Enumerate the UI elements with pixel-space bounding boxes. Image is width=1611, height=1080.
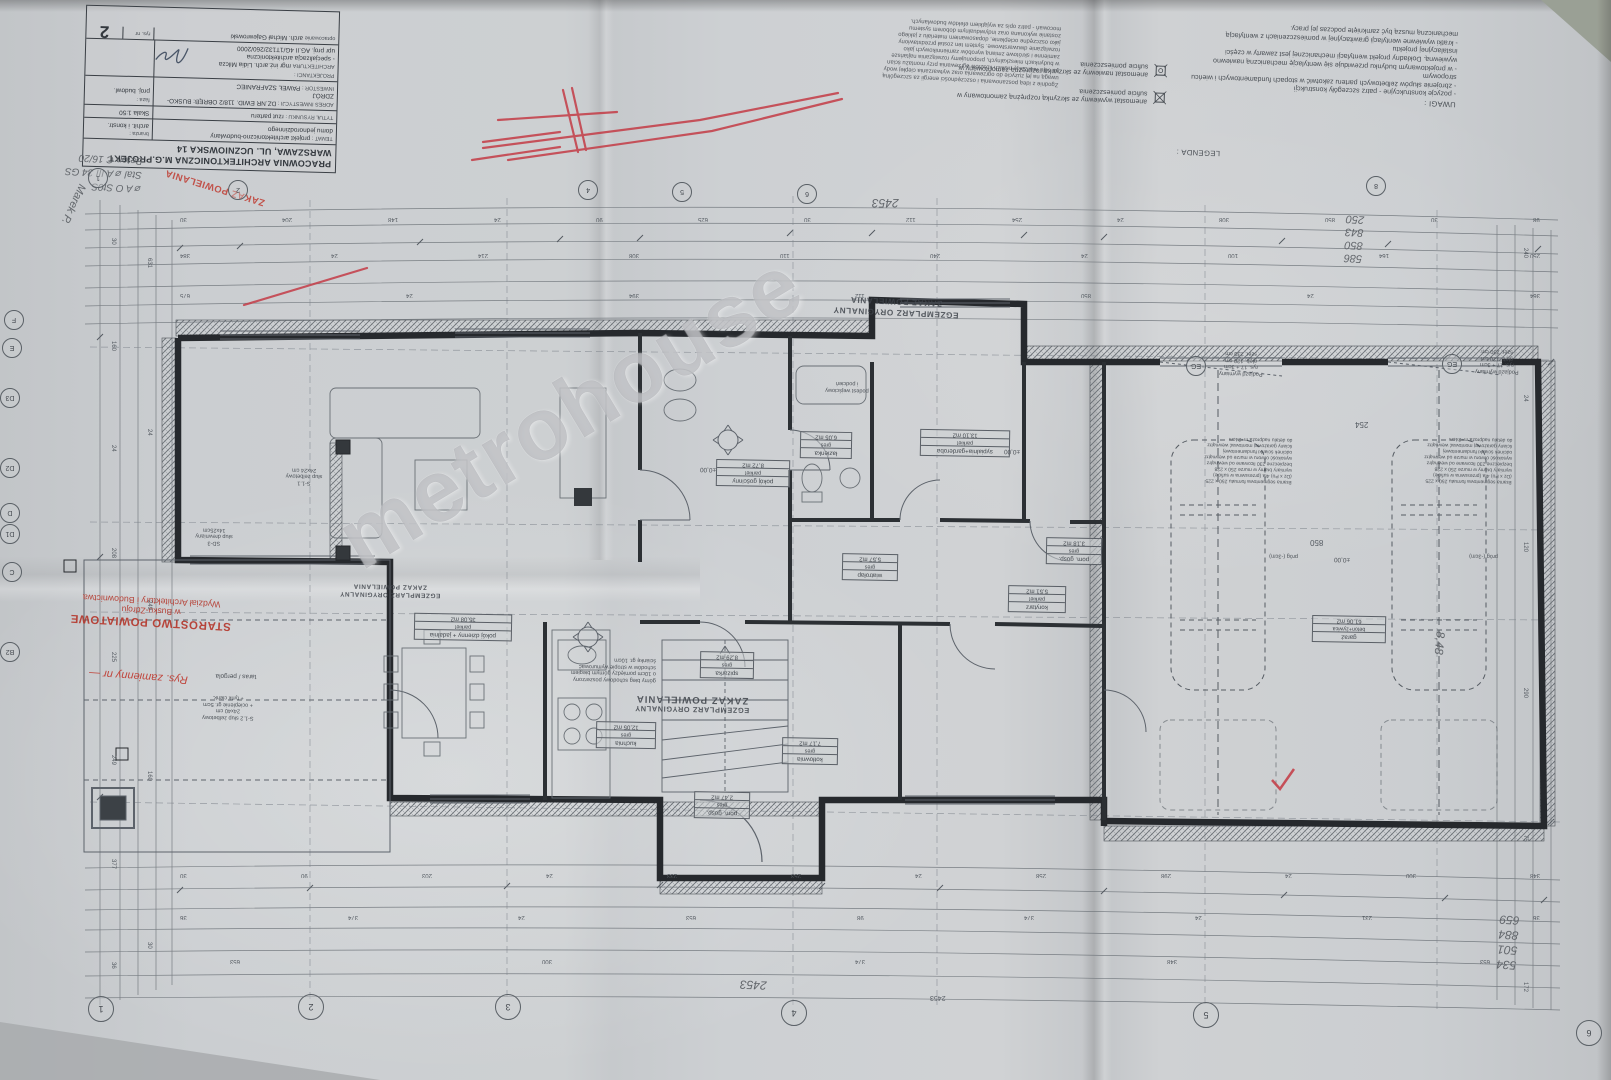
dim-value: 30 <box>180 872 187 878</box>
dim-value: 30 <box>110 238 116 248</box>
dim-value: 203 <box>422 872 432 878</box>
dim-value: 308 <box>1219 216 1229 222</box>
room-label: wiatrołapgres5,57 m2 <box>842 554 898 582</box>
room-label: spiżarkagres8,29 m2 <box>700 652 754 680</box>
anemostat-exhaust-icon <box>1153 91 1166 104</box>
axis-bubble: 1 <box>88 168 108 188</box>
dim-chain-left: 301602420822524937736 <box>108 240 118 970</box>
projektanci-label: PROJEKTANCI : <box>294 71 334 78</box>
dim-value: 98 <box>857 914 864 920</box>
dim-value: 348 <box>1530 872 1540 878</box>
dim-value: 653 <box>230 958 240 964</box>
dim-value: 24 <box>1285 872 1292 878</box>
pencil-number: 2453 <box>872 196 899 210</box>
axis-bubble: 4 <box>578 180 598 200</box>
dim-value: 30 <box>180 216 187 222</box>
dim-value: 374 <box>1024 914 1034 920</box>
dim-chain-bottom-2: 3637424653983742423136 <box>180 914 1540 920</box>
axis-bubble: D3 <box>0 388 20 408</box>
level-mark: ±0,00 <box>700 466 716 473</box>
dim-value: 250 <box>1530 252 1540 258</box>
room-label: sypialnia+garderobaparkiet13,10 m2 <box>920 429 1010 457</box>
dim-value: 258 <box>1036 872 1046 878</box>
faza-value: proj. budowl. <box>114 87 150 95</box>
dim-value: 254 <box>1012 216 1022 222</box>
dim-value: 298 <box>1161 872 1171 878</box>
dim-value: 90 <box>301 872 308 878</box>
axis-bubble: 4 <box>781 1000 807 1026</box>
stairs-note: górny bieg schodowy poszerzonyo 10cm pom… <box>548 655 656 683</box>
room-label: pokój gościnnyparkiet8,72 m2 <box>716 459 790 487</box>
dim-chain-bottom-3: 653300374348653 <box>230 958 1490 964</box>
prog-label: próg (-3cm) <box>1246 552 1298 560</box>
dim-value: 90 <box>596 216 603 222</box>
pencil-number: 8,48 <box>1432 631 1448 655</box>
dim-value: 24 <box>110 445 116 455</box>
room-label: garażbeton+żywica61,06 m2 <box>1312 615 1386 643</box>
dim-value: 30 <box>146 942 152 952</box>
fireplace <box>574 488 592 506</box>
garage-door-note: Brama segmentowa formatu 250 x 225(Dz x … <box>1180 435 1293 485</box>
dim-value: 377 <box>110 859 116 869</box>
temat-value-2: domu jednorodzinnego <box>268 125 333 134</box>
room-label: pom. gosp.gres2,47 m2 <box>694 792 750 820</box>
dim-chain-right: 2402412029075172 <box>1520 250 1530 990</box>
eg-symbol: EG <box>1186 356 1206 376</box>
dim-value: 30 <box>1431 216 1438 222</box>
dim-value: 24 <box>915 872 922 878</box>
column-note-s12: S-1.2 słup żelbetowy24x40 cm+ ocieplenie… <box>182 693 274 721</box>
axis-bubble: 5 <box>672 182 692 202</box>
axis-bubble: C <box>2 562 22 582</box>
level-mark: ±0,00 <box>1004 448 1020 455</box>
dim-value: 675 <box>180 292 190 298</box>
dim-value: 214 <box>478 252 488 258</box>
dim-value: 148 <box>388 216 398 222</box>
dim-value: 110 <box>780 252 790 258</box>
dim-value: 160 <box>110 341 116 351</box>
architekt-name: mgr inż.arch. Lidia Milcza <box>219 60 291 69</box>
signature-icon <box>152 41 193 68</box>
dim-value: 24 <box>146 429 152 439</box>
dim-value: 374 <box>855 958 865 964</box>
dim-value: 653 <box>686 914 696 920</box>
dim-value: 290 <box>1522 688 1528 698</box>
dim-value: 625 <box>698 216 708 222</box>
dim-value: 36 <box>180 914 187 920</box>
axis-bubble: 2 <box>228 180 248 200</box>
dim-value: 308 <box>629 252 639 258</box>
dim-value: 631 <box>146 258 152 268</box>
dim-value: 204 <box>282 216 292 222</box>
room-label: pom. gosp.gres3,18 m2 <box>1046 538 1102 566</box>
room-label: łazienkagres6,05 m2 <box>800 432 852 460</box>
dim-value: 36 <box>110 962 116 972</box>
dim-value: 100 <box>1228 252 1238 258</box>
axis-bubble: 1 <box>88 996 114 1022</box>
dim-value: 850 <box>1081 292 1091 298</box>
axis-bubble: 5 <box>1193 1002 1219 1028</box>
podjazd-note: Podjazd wymianyrys. 17 + 3cmgłęb. 120 cm… <box>1206 349 1276 377</box>
room-label: korytarzparkiet5,51 m2 <box>1008 585 1066 613</box>
room-label: pokój dzienny + jadalniaparkiet35,08 m2 <box>414 613 512 641</box>
dim-value: 225 <box>110 652 116 662</box>
axis-bubble: 6 <box>1576 1020 1602 1046</box>
dim-value: 24 <box>1195 914 1202 920</box>
dim-total: 2453 <box>930 994 946 1001</box>
title-block: PRACOWNIA ARCHITEKTONICZNA M.G.PROJEKT W… <box>82 5 340 174</box>
dim-value: 348 <box>1167 958 1177 964</box>
pencil-number-stack: 534 501 884 659 <box>1476 910 1540 974</box>
axis-bubble: E <box>2 338 22 358</box>
anemostat-supply-icon <box>1154 64 1167 77</box>
dim-value: 24 <box>1307 292 1314 298</box>
dim-value: 75 <box>1522 835 1528 845</box>
axis-bubble: 6 <box>797 184 817 204</box>
branza-label: branża : <box>129 130 149 137</box>
dim-value: 98 <box>1533 216 1540 222</box>
dim-value: 300 <box>1406 872 1416 878</box>
axis-bubble: 8 <box>1366 176 1386 196</box>
dim-chain-top-3: 6752439411285024364 <box>180 292 1540 298</box>
garage-door-note: Brama segmentowa formatu 250 x 225(Dz x … <box>1400 435 1513 485</box>
dim-value: 394 <box>629 292 639 298</box>
dim-garage-depth: 254 <box>1355 420 1368 429</box>
dim-value: 374 <box>348 914 358 920</box>
dim-value: 208 <box>110 548 116 558</box>
podest-label: podest wejściowyi podcień <box>812 379 882 393</box>
inwestor-label: INWESTOR : <box>302 84 334 91</box>
pencil-number-stack: 586 850 843 250 <box>1331 211 1378 265</box>
dim-chain-bottom-1: 3090203242332532425829824300348 <box>180 872 1540 878</box>
inwestor-value: PAWEŁ SZAFRANIEC <box>236 83 300 92</box>
dim-chain-left-2: 6312424916030 <box>144 260 154 950</box>
eg-symbol: EG <box>1442 354 1462 374</box>
room-label: kuchniagres12,05 m2 <box>596 721 656 749</box>
pencil-number: 2453 <box>740 978 767 993</box>
opracowanie-value: arch. Michał Gajewrowski <box>230 32 303 41</box>
temat-label: TEMAT : <box>312 135 333 142</box>
dim-value: 160 <box>146 771 152 781</box>
energy-note: Zgodnie z ideą poszanowania i oszczędnoś… <box>821 12 1062 87</box>
dim-value: 112 <box>906 216 916 222</box>
axis-bubble: B2 <box>0 642 20 662</box>
dim-value: 30 <box>804 216 811 222</box>
axis-bubble: 2 <box>298 994 324 1020</box>
uwagi-notes: UWAGI : - pozycje konstrukcyjne - patrz … <box>1184 19 1459 108</box>
dim-value: 24 <box>1117 216 1124 222</box>
original-stamp: EGZEMPLARZ ORYGINALNYZAKAZ POWIELANIA <box>330 581 450 599</box>
axis-bubble: F <box>4 310 24 330</box>
dining-table <box>384 630 484 756</box>
skala-value: Skala 1:50 <box>84 104 153 118</box>
dim-value: 164 <box>1379 252 1389 258</box>
axis-bubble: D2 <box>0 458 20 478</box>
dim-value: 249 <box>146 600 152 610</box>
rysnr-label: rys. nr <box>135 30 150 36</box>
axis-bubble: D <box>0 503 20 523</box>
dim-value: 172 <box>1522 982 1528 992</box>
uwagi-list: - pozycje konstrukcyjne - patrz szczegół… <box>1184 19 1458 97</box>
column-note-sd3: SD-3słup drewniany14x25cm <box>186 526 242 547</box>
level-mark: ±0,00 <box>1334 556 1350 563</box>
dim-value: 24 <box>518 914 525 920</box>
dim-garage-width: 850 <box>1310 538 1323 547</box>
tytul-value: rzut parteru <box>251 112 284 120</box>
axis-bubble: D1 <box>0 524 20 544</box>
adres-label: ADRES INWESTYCJI : <box>278 100 334 107</box>
dim-value: 240 <box>1522 248 1528 258</box>
dim-value: 231 <box>1362 914 1372 920</box>
dim-value: 24 <box>494 216 501 222</box>
prog-label: próg (-3cm) <box>1446 552 1498 560</box>
branza-value: archit. i konstr. <box>108 121 149 129</box>
taras-label: taras / pergola <box>204 671 268 679</box>
dim-value: 24 <box>406 292 413 298</box>
dim-value: 364 <box>1530 292 1540 298</box>
dim-value: 24 <box>546 872 553 878</box>
original-stamp: EGZEMPLARZ ORYGINALNYZAKAZ POWIELANIA <box>612 693 772 716</box>
dim-value: 24 <box>331 252 338 258</box>
dim-value: 300 <box>542 958 552 964</box>
axis-bubble: 3 <box>495 994 521 1020</box>
dim-value: 233 <box>667 872 677 878</box>
dim-value: 120 <box>1522 542 1528 552</box>
dim-value: 240 <box>930 252 940 258</box>
drawing-number: 2 <box>89 28 119 36</box>
temat-value-1: projekt architektoniczno-budowlany <box>210 132 310 142</box>
faza-label: faza : <box>136 96 149 102</box>
dim-value: 24 <box>1522 395 1528 405</box>
dim-value: 253 <box>791 872 801 878</box>
opracowanie-label: opracowanie <box>305 34 336 41</box>
dim-value: 24 <box>1081 252 1088 258</box>
dim-value: 249 <box>110 755 116 765</box>
tytul-label: TYTUŁ RYSUNKU : <box>285 113 333 120</box>
dim-value: 384 <box>180 252 190 258</box>
column-note-s11: S-1.1słup żelbetowy24x24 cm <box>276 466 332 487</box>
wall-insulation-hatch <box>162 320 1555 894</box>
architektura-label: ARCHITEKTURA <box>293 62 335 69</box>
floorplan-photo: PRACOWNIA ARCHITEKTONICZNA M.G.PROJEKT W… <box>0 0 1611 1080</box>
room-label: kotłowniagres7,17 m2 <box>782 738 838 766</box>
dim-value: 112 <box>855 292 865 298</box>
red-check-mark <box>1272 769 1294 789</box>
